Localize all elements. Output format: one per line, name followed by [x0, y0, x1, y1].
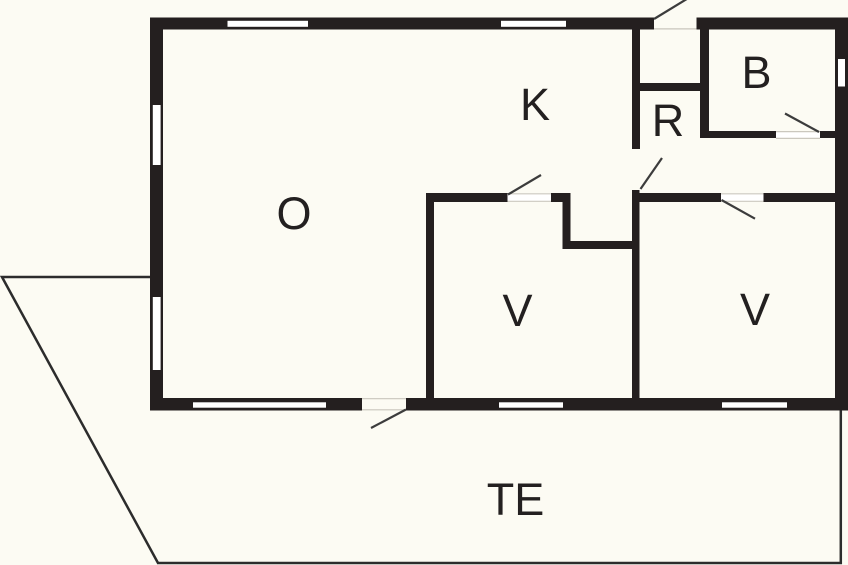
svg-text:V: V: [502, 285, 532, 336]
svg-text:TE: TE: [487, 474, 545, 525]
svg-text:O: O: [276, 188, 311, 239]
svg-text:V: V: [740, 284, 770, 335]
svg-text:K: K: [520, 79, 550, 130]
svg-text:R: R: [652, 95, 685, 146]
svg-text:B: B: [741, 47, 771, 98]
